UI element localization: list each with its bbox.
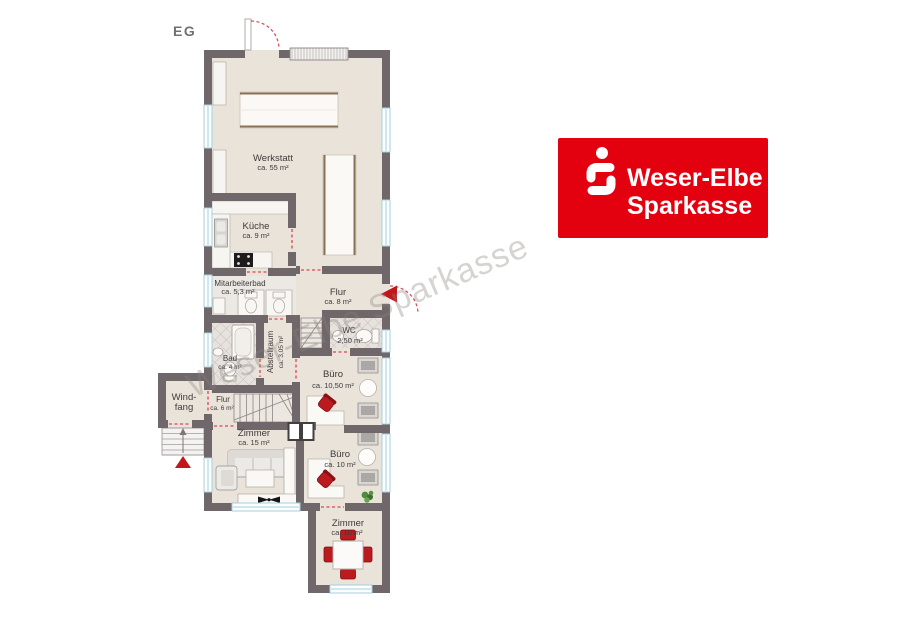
room-label-buero2: Büro: [330, 449, 350, 460]
svg-text:ca. 9 m²: ca. 9 m²: [242, 231, 270, 240]
svg-text:ca. 55 m²: ca. 55 m²: [257, 163, 289, 172]
svg-text:fang: fang: [175, 402, 194, 413]
radiator-icon: [358, 470, 378, 485]
svg-text:ca. 15 m²: ca. 15 m²: [238, 438, 270, 447]
window-icon: [382, 330, 390, 352]
window-icon: [204, 208, 212, 246]
window-icon: [382, 108, 390, 152]
wall-shelf-lower: [213, 150, 226, 195]
svg-text:ca. 6 m²: ca. 6 m²: [210, 405, 234, 412]
gate-icon: [290, 48, 348, 60]
exterior-stairs: [162, 428, 204, 468]
window-icon: [382, 434, 390, 492]
svg-text:ca. 5,3 m²: ca. 5,3 m²: [221, 287, 255, 296]
cabinet-icon: [284, 448, 295, 498]
window-icon: [204, 458, 212, 492]
radiator-icon: [358, 358, 378, 373]
door-swing-arc: [251, 21, 279, 49]
workbench-vertical: [323, 155, 356, 255]
floorplan-page: Werkstatt ca. 55 m² Küche ca. 9 m² Mitar…: [0, 0, 900, 636]
window-icon: [204, 275, 212, 307]
room-label-flur6: Flur: [216, 395, 230, 404]
workbench-horizontal: [240, 92, 338, 128]
stairs-main: [234, 394, 296, 422]
window-icon: [382, 200, 390, 246]
wall-shelf-upper: [213, 62, 226, 105]
svg-text:ca. 10,50 m²: ca. 10,50 m²: [312, 381, 354, 390]
floorplan-svg: Werkstatt ca. 55 m² Küche ca. 9 m² Mitar…: [0, 0, 900, 636]
chair-icon: [324, 547, 334, 562]
coffee-table-icon: [246, 470, 274, 487]
window-icon: [382, 358, 390, 424]
door-leaf: [245, 19, 251, 50]
logo-line2: Sparkasse: [627, 192, 752, 220]
room-label-buero1: Büro: [323, 369, 343, 380]
dining-table-icon: [333, 541, 363, 569]
svg-text:ca. 10 m²: ca. 10 m²: [331, 528, 363, 537]
logo-line1: Weser-Elbe: [627, 164, 763, 192]
window-icon: [204, 105, 212, 148]
entrance-arrow-icon: [175, 456, 191, 468]
round-table-icon: [360, 380, 377, 397]
double-door-icon: [289, 423, 314, 440]
round-table-icon: [359, 449, 376, 466]
kitchen-sink-icon: [215, 219, 228, 247]
radiator-icon: [358, 403, 378, 418]
armchair-seat: [221, 470, 234, 486]
stove-icon: [234, 253, 253, 267]
window-icon: [232, 503, 300, 511]
chair-icon: [341, 569, 356, 579]
svg-text:ca. 10 m²: ca. 10 m²: [324, 460, 356, 469]
window-icon: [330, 585, 372, 593]
sparkasse-logo: Weser-Elbe Sparkasse: [558, 138, 768, 238]
floor-level-label: EG: [173, 23, 196, 39]
chair-icon: [362, 547, 372, 562]
toilet-icon: [273, 292, 285, 313]
